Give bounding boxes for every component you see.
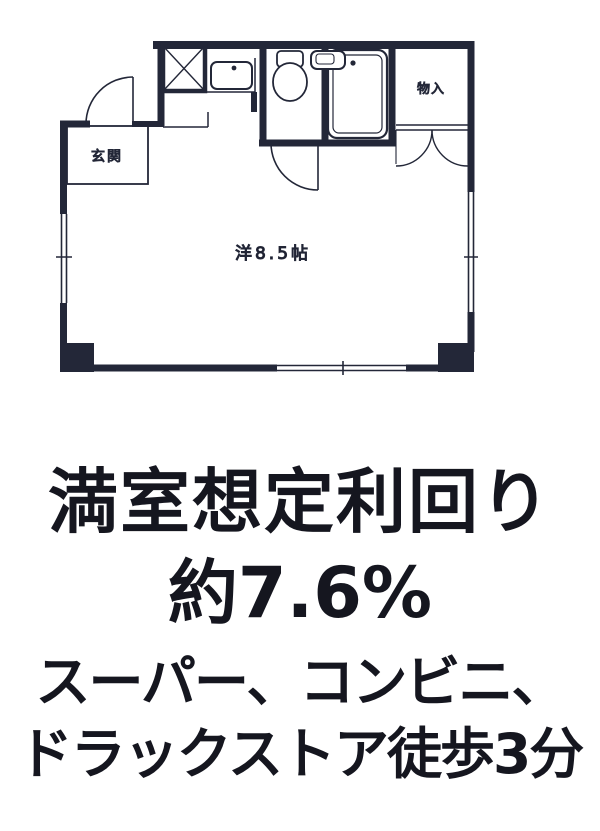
window-marks xyxy=(56,192,478,375)
washer-box xyxy=(163,45,208,127)
room-door xyxy=(271,143,318,190)
closet-doors xyxy=(396,125,468,166)
toilet xyxy=(273,51,307,101)
kitchen-sink xyxy=(206,58,255,92)
entrance-area xyxy=(67,77,148,184)
faucet-dot-icon xyxy=(232,66,237,71)
room-door-arc xyxy=(271,143,318,190)
yield-title: 満室想定利回り xyxy=(0,462,600,543)
closet-label: 物入 xyxy=(417,82,445,97)
outer-walls xyxy=(60,41,474,368)
caption: 満室想定利回り 約7.6% スーパー、コンビニ、 ドラックストア徒歩3分 xyxy=(0,462,600,791)
entrance-label: 玄関 xyxy=(91,148,123,165)
floor-plan: 玄関 物入 洋8.5帖 xyxy=(0,0,600,440)
floor-plan-svg: 玄関 物入 洋8.5帖 xyxy=(0,0,600,440)
bath-faucet-dot-icon xyxy=(350,60,355,65)
room-size-label: 洋8.5帖 xyxy=(235,244,311,264)
yield-value: 約7.6% xyxy=(0,555,600,632)
x-mark-icon xyxy=(164,47,204,90)
access-line-1: スーパー、コンビニ、 xyxy=(0,646,600,719)
entrance-door-arc xyxy=(86,77,133,124)
access-line-2: ドラックストア徒歩3分 xyxy=(0,718,600,791)
